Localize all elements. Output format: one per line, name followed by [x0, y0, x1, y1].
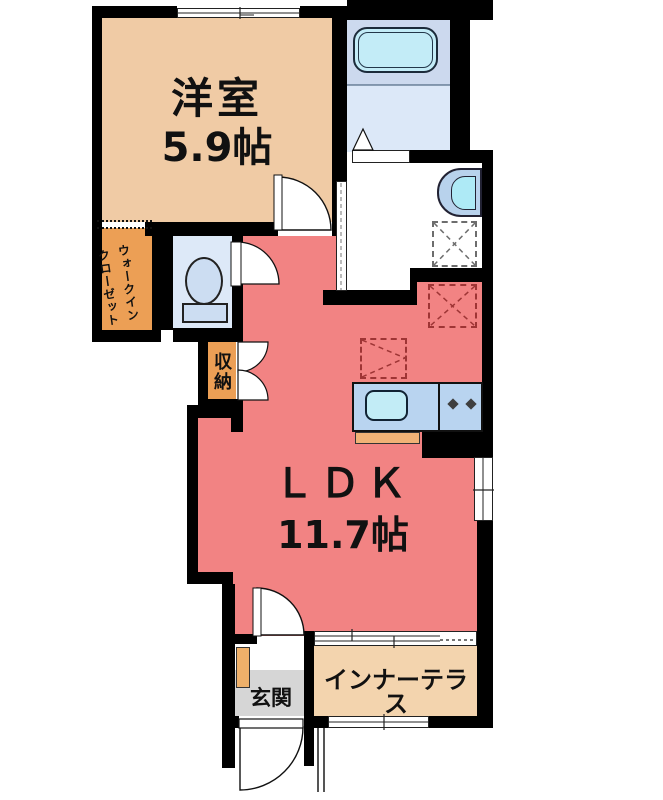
- door-arc-entrance: [240, 727, 303, 790]
- room-label-western: 洋室: [97, 78, 337, 120]
- room-label-terrace: インナーテラス: [316, 668, 476, 716]
- room-label-storage: 収納: [212, 345, 230, 399]
- floorplan: 洋室 5.9帖 ＬＤＫ 11.7帖 ウォークイン クローゼット 収納 玄関 イン…: [0, 0, 663, 800]
- door-arc-toilet: [237, 242, 279, 284]
- door-leaf-ldk: [253, 588, 261, 636]
- door-arc-western: [278, 177, 331, 230]
- room-label-entrance: 玄関: [237, 688, 305, 709]
- bath-door-icon: [353, 129, 373, 150]
- door-arc-storage-top: [238, 342, 268, 372]
- kitchen-v-line: [362, 358, 405, 377]
- door-leaf-western: [274, 175, 282, 230]
- door-leaf-toilet: [231, 242, 241, 286]
- room-label-ldk: ＬＤＫ: [218, 464, 468, 504]
- kitchen-v-line: [362, 340, 405, 358]
- room-area-ldk: 11.7帖: [213, 516, 473, 554]
- door-leaf-entrance: [239, 719, 303, 728]
- door-arc-ldk: [257, 588, 304, 635]
- door-arc-storage-bottom: [238, 370, 268, 400]
- room-area-western: 5.9帖: [97, 128, 337, 168]
